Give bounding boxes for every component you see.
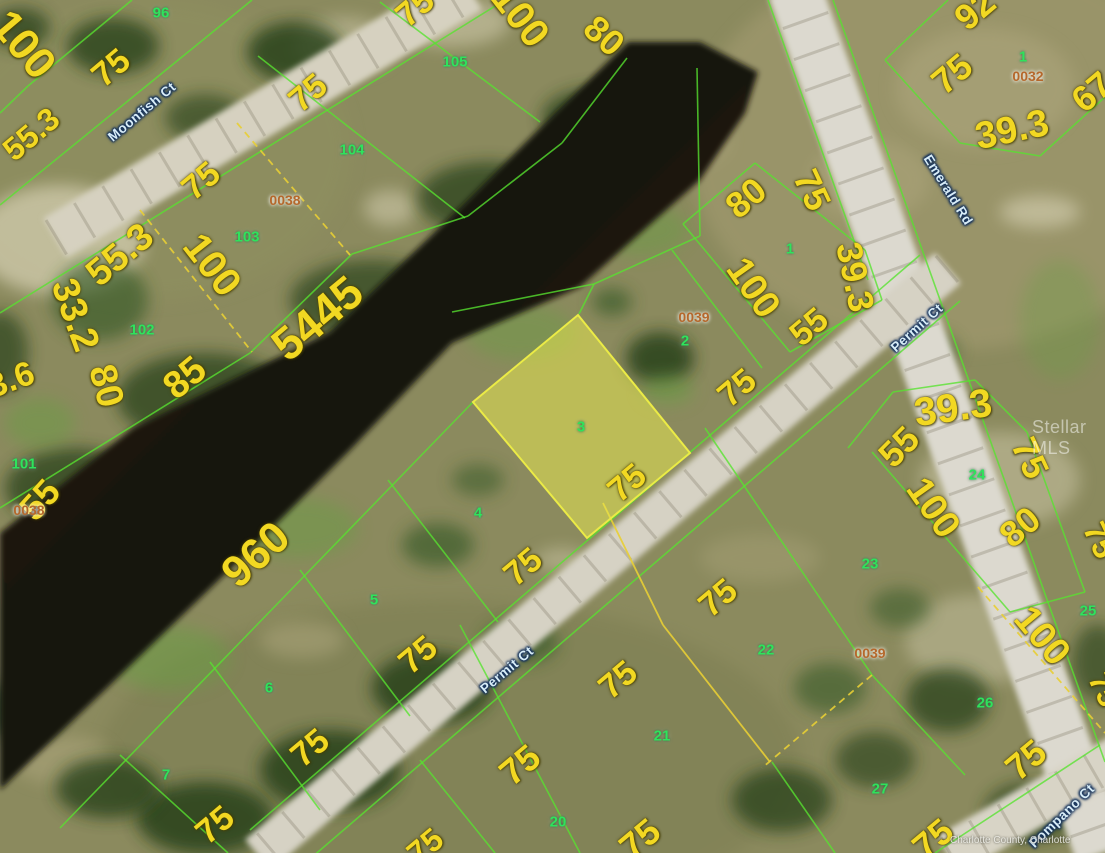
dimension-label: 55 [784, 302, 835, 352]
map-attribution: Charlotte County, Charlotte [950, 835, 1070, 846]
parcel-number: 4 [474, 506, 482, 521]
dimension-label: 39.3 [972, 104, 1052, 157]
dimension-label: 92 [948, 0, 1002, 37]
dimension-label: 80 [993, 500, 1047, 553]
dimension-label: 75 [693, 573, 744, 623]
parcel-number: 3 [577, 420, 585, 435]
dimension-label: 75 [925, 47, 979, 100]
dimension-label: 75 [787, 164, 837, 216]
parcel-number: 104 [339, 143, 364, 158]
dimension-label: 75 [285, 723, 336, 773]
street-name: Permit Ct [889, 301, 946, 354]
parcel-number: 1 [786, 242, 794, 257]
dimension-label: 75 [493, 738, 547, 791]
dimension-label: 75 [86, 43, 137, 93]
dimension-label: 5445 [263, 267, 371, 368]
map-labels: 10075757555.355.333.2100858033.655544596… [0, 0, 1105, 853]
dimension-label: 55.3 [79, 217, 160, 294]
dimension-label: 85 [157, 350, 214, 406]
dimension-label: 75 [1078, 517, 1105, 563]
dimension-label: 75 [401, 822, 449, 853]
block-number: 0038 [13, 503, 44, 517]
block-number: 0039 [854, 646, 885, 660]
dimension-label: 39.3 [830, 239, 880, 315]
parcel-number: 105 [442, 55, 467, 70]
parcel-number: 1 [1019, 50, 1027, 65]
parcel-number: 23 [862, 557, 879, 572]
dimension-label: 960 [214, 514, 298, 596]
parcel-number: 96 [153, 6, 170, 21]
dimension-label: 67 [1065, 65, 1105, 118]
dimension-label: 33.6 [0, 356, 39, 411]
parcel-number: 22 [758, 643, 775, 658]
block-number: 0038 [269, 193, 300, 207]
dimension-label: 75 [390, 0, 441, 33]
dimension-label: 100 [899, 471, 966, 545]
dimension-label: 80 [82, 361, 130, 412]
parcel-number: 5 [370, 593, 378, 608]
street-name: Moonfish Ct [106, 80, 179, 144]
parcel-number: 101 [11, 457, 36, 472]
dimension-label: 75 [906, 812, 960, 853]
dimension-label: 75 [498, 542, 549, 592]
dimension-label: 75 [283, 68, 334, 118]
dimension-label: 33.2 [44, 274, 105, 357]
parcel-number: 6 [265, 681, 273, 696]
dimension-label: 75 [712, 363, 763, 413]
parcel-map: 10075757555.355.333.2100858033.655544596… [0, 0, 1105, 853]
parcel-number: 24 [969, 468, 986, 483]
dimension-label: 55.3 [0, 102, 65, 167]
stellar-mls-watermark: Stellar MLS [1032, 417, 1105, 459]
dimension-label: 100 [719, 251, 786, 325]
dimension-label: 55 [13, 473, 67, 527]
block-number: 0032 [1012, 69, 1043, 83]
parcel-number: 103 [234, 230, 259, 245]
street-name: Permit Ct [478, 644, 536, 696]
dimension-label: 75 [593, 655, 644, 705]
dimension-label: 80 [577, 9, 631, 63]
dimension-label: 100 [1007, 600, 1077, 673]
dimension-label: 100 [0, 3, 63, 88]
dimension-label: 75 [602, 458, 653, 508]
dimension-label: 75 [176, 156, 227, 206]
street-name: Emerald Rd [921, 152, 975, 227]
dimension-label: 75 [393, 630, 444, 680]
parcel-number: 7 [162, 768, 170, 783]
parcel-number: 26 [977, 696, 994, 711]
dimension-label: 39.3 [912, 383, 995, 433]
parcel-number: 21 [654, 729, 671, 744]
parcel-number: 102 [129, 323, 154, 338]
dimension-label: 75 [613, 812, 667, 853]
dimension-label: 75 [1082, 669, 1105, 712]
block-number: 0039 [678, 310, 709, 324]
parcel-number: 20 [550, 815, 567, 830]
dimension-label: 75 [190, 800, 241, 850]
dimension-label: 100 [484, 0, 557, 55]
dimension-label: 75 [999, 733, 1053, 786]
parcel-number: 2 [681, 334, 689, 349]
parcel-number: 27 [872, 782, 889, 797]
dimension-label: 80 [719, 171, 773, 224]
parcel-number: 25 [1080, 604, 1097, 619]
